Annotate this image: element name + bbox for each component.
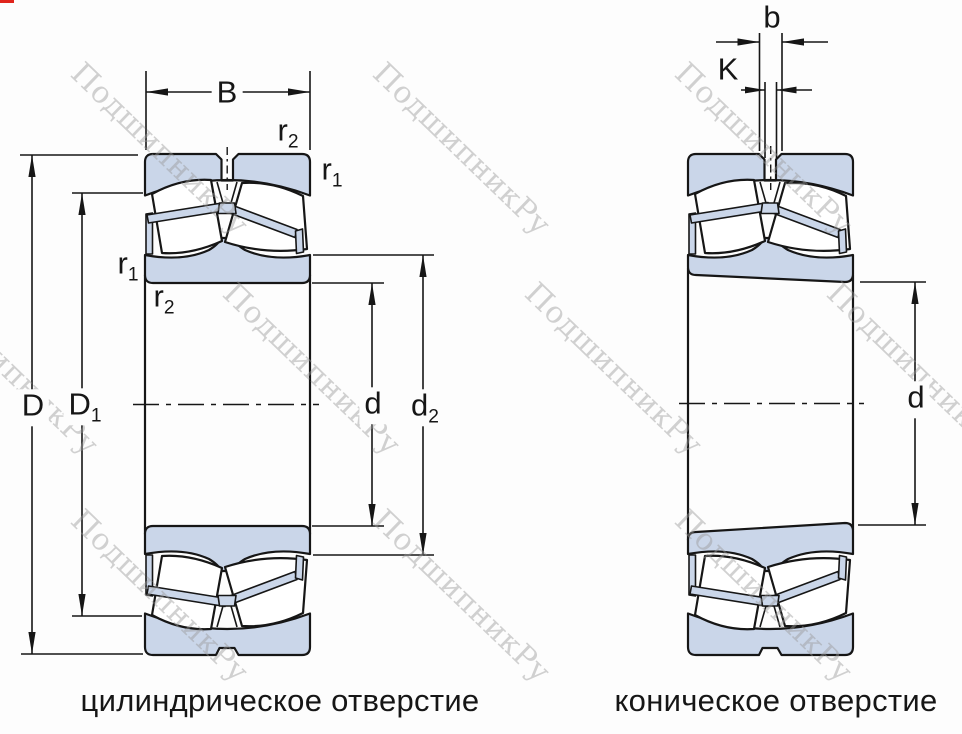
label-r1-right: r1	[321, 153, 342, 190]
left-bearing-upper-half	[145, 147, 310, 283]
label-b: b	[763, 1, 780, 38]
right-bearing-lower-half	[688, 523, 853, 655]
dim-K-arrow-left	[745, 87, 765, 94]
caption-tapered-bore: коническое отверстие	[614, 683, 937, 719]
bearing-diagram-svg	[0, 0, 962, 734]
cage-center-bar	[761, 203, 779, 214]
cage-right-prong	[839, 229, 847, 254]
dim-B-arrow-left	[146, 88, 168, 95]
label-D: D	[17, 389, 49, 426]
right-bearing-upper-half	[688, 154, 853, 282]
roller-gap-lines	[217, 606, 237, 627]
label-r1-left: r1	[117, 247, 138, 284]
dim-D-arrow-bottom	[28, 632, 35, 654]
cage-right-prong	[296, 229, 304, 254]
dim-b-extension-lines	[760, 33, 783, 151]
dim-B-arrow-right	[288, 88, 310, 95]
roller-right	[225, 558, 307, 626]
cage-center-bar	[218, 203, 236, 214]
cage-right-prong	[839, 556, 847, 581]
label-r2-left: r2	[153, 280, 174, 317]
cage-right-prong	[296, 556, 304, 581]
screen-artifact-red-line	[0, 0, 14, 3]
dim-d-right-arrow-top	[911, 282, 918, 304]
right-bearing-section	[679, 146, 864, 655]
dim-d-arrow-top	[368, 283, 375, 305]
dim-d-right-arrow-bottom	[911, 503, 918, 525]
dim-D1-arrow-bottom	[78, 594, 85, 616]
left-bearing-lower-half	[145, 526, 310, 655]
label-B: B	[212, 76, 243, 113]
dim-D1-arrow-top	[78, 193, 85, 215]
label-d2: d2	[406, 389, 444, 426]
roller-gap-lines	[760, 606, 780, 627]
bearing-drawing-page: ПодшипникРу ПодшипникРу ПодшипникРу Подш…	[0, 0, 962, 734]
dim-b-arrow-right	[782, 38, 804, 45]
cage-center-bar	[218, 596, 236, 607]
cage-center-bar	[761, 596, 779, 607]
label-D1: D1	[63, 388, 106, 425]
dim-K-arrow-right	[777, 87, 797, 94]
dimension-K	[741, 82, 812, 158]
dim-D-arrow-top	[28, 155, 35, 177]
caption-cylindrical-bore: цилиндрическое отверстие	[81, 683, 480, 719]
roller-right	[768, 183, 850, 251]
left-bearing-section	[133, 147, 319, 655]
dim-d2-arrow-top	[419, 255, 426, 277]
label-d-right: d	[902, 381, 929, 418]
label-K: K	[718, 53, 739, 90]
dim-b-arrow-left	[738, 38, 760, 45]
roller-right	[225, 183, 307, 251]
label-r2-top: r2	[277, 114, 298, 151]
dim-d2-arrow-bottom	[419, 533, 426, 555]
dim-d-arrow-bottom	[368, 504, 375, 526]
label-d-left: d	[359, 387, 386, 424]
roller-right	[768, 558, 850, 626]
